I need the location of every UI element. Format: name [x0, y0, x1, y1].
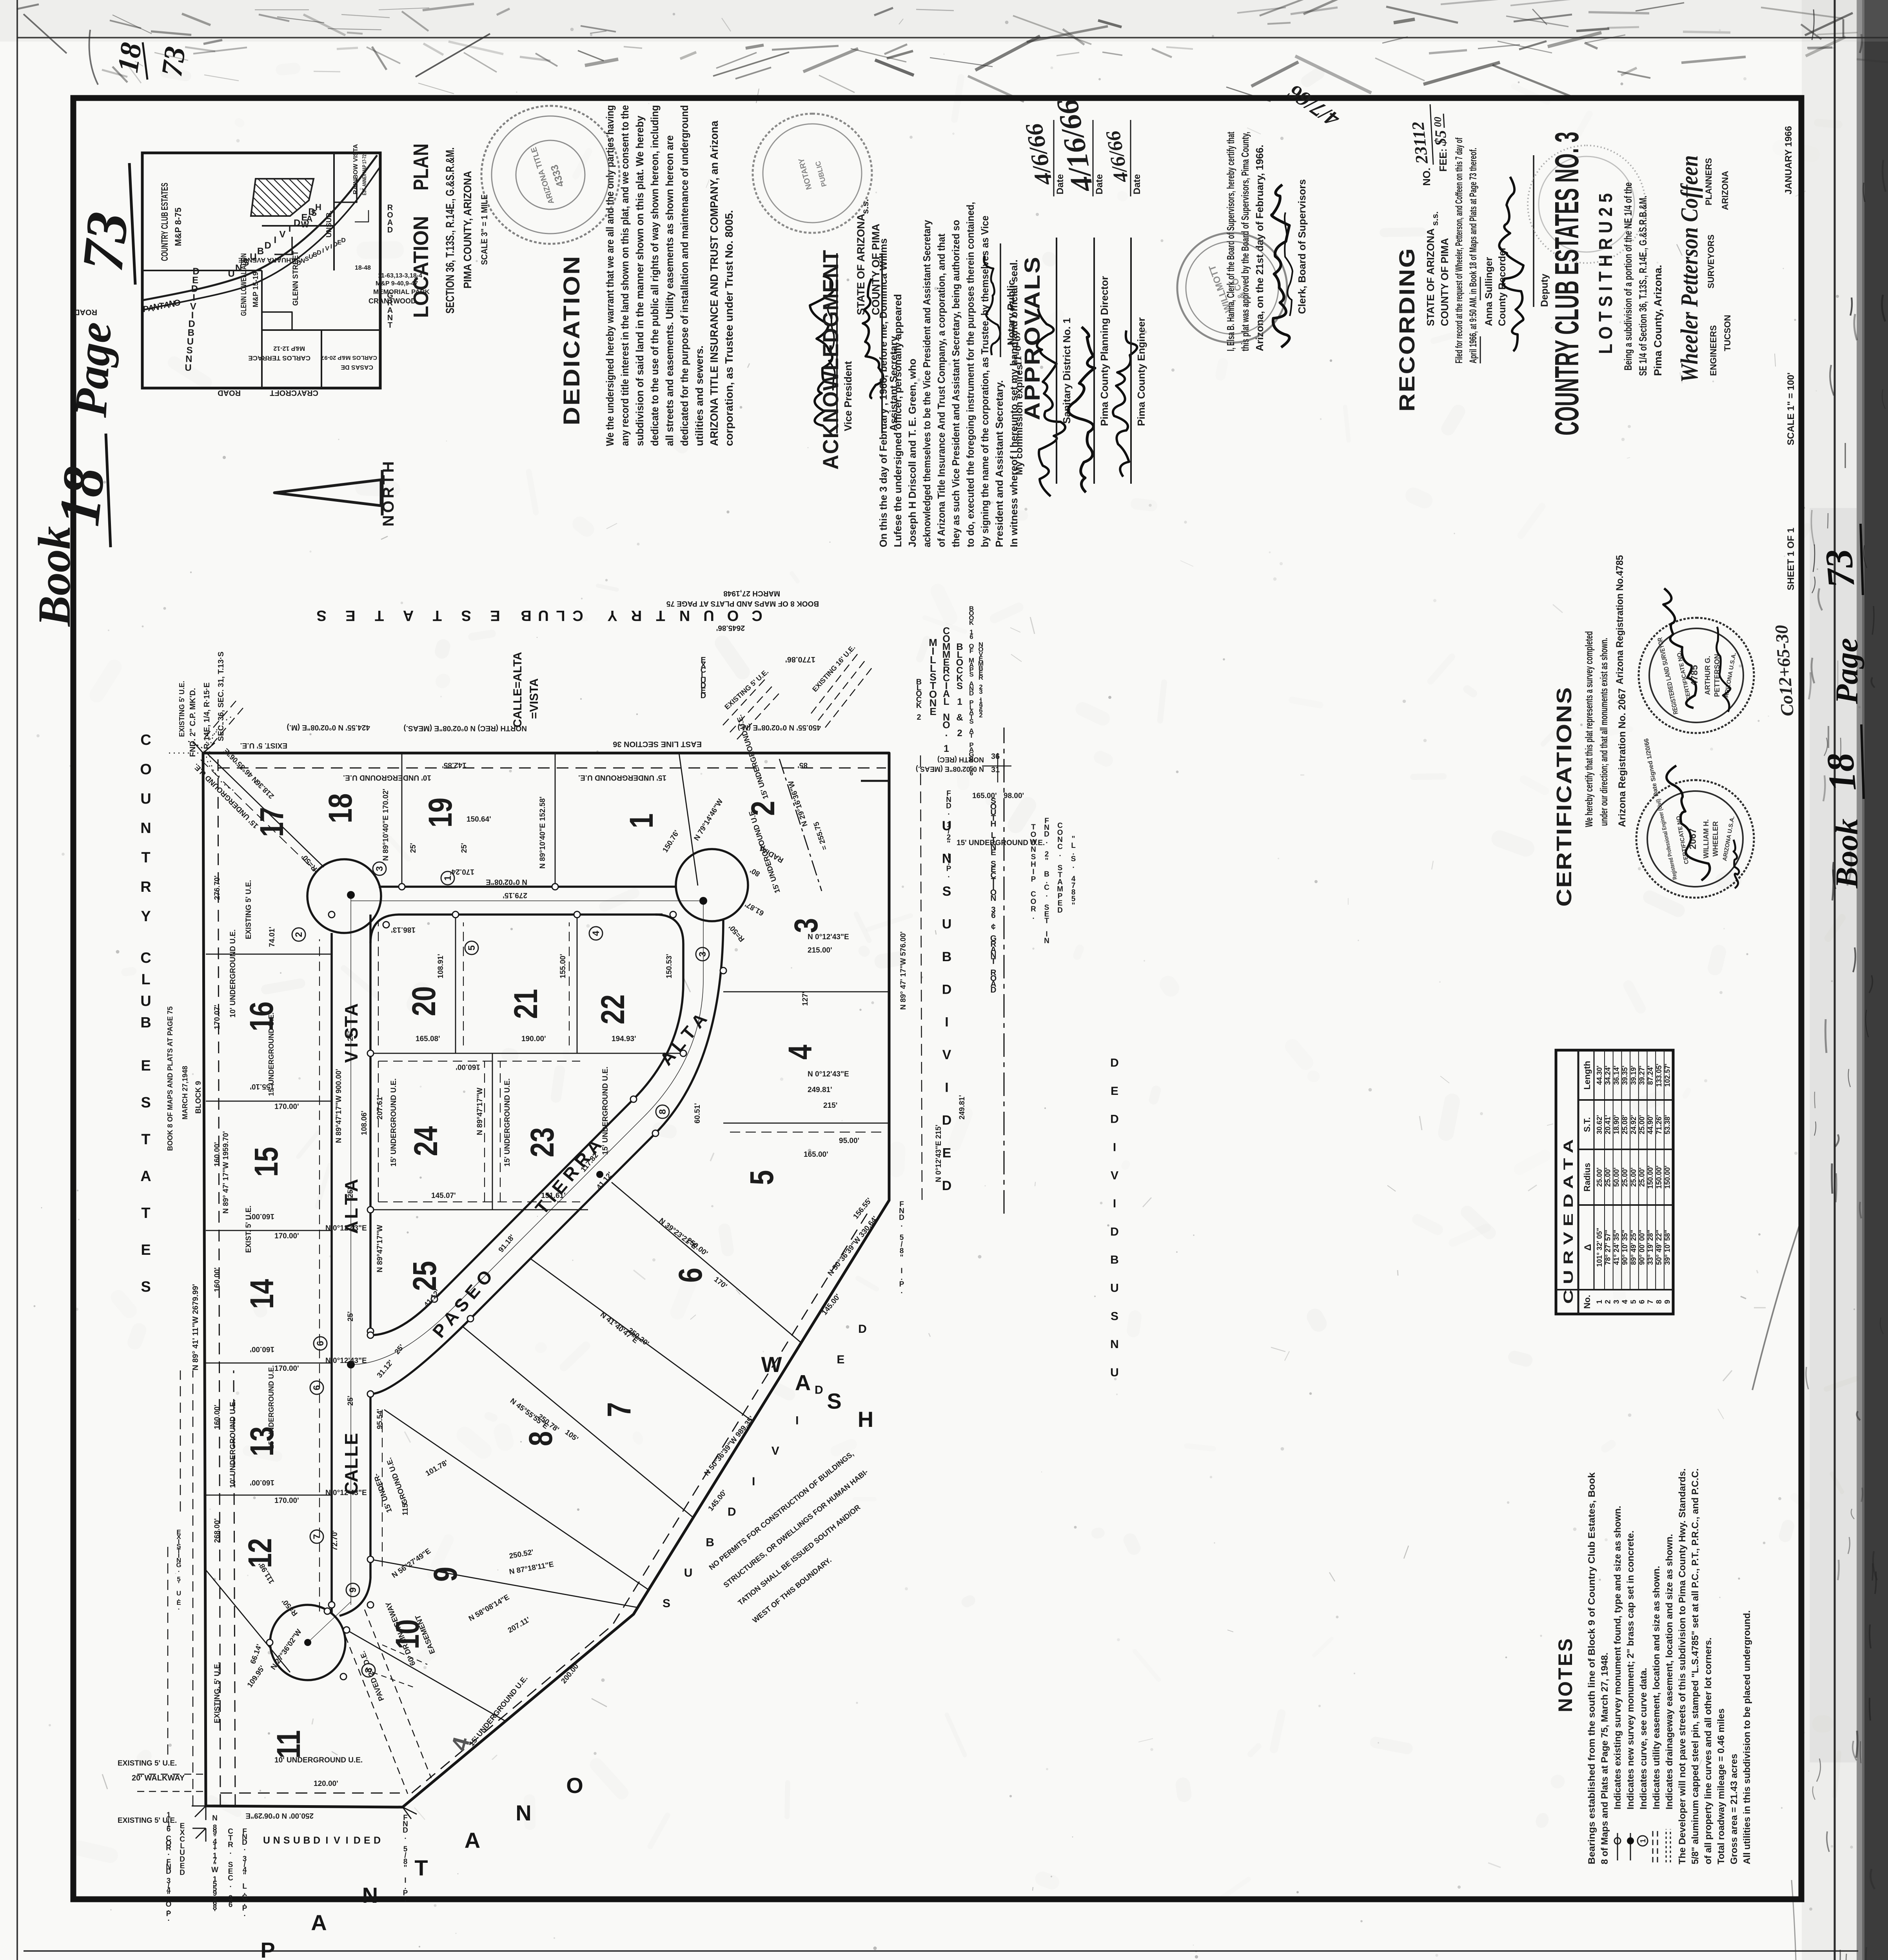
svg-text:ACKNOWLEDGMENT: ACKNOWLEDGMENT — [818, 249, 843, 470]
svg-text:E: E — [837, 1353, 844, 1366]
svg-text:NO.: NO. — [1421, 168, 1432, 186]
svg-text:C: C — [140, 732, 151, 748]
svg-text:Indicates utility easement, lo: Indicates utility easement, location and… — [1651, 1566, 1662, 1809]
svg-text:1: 1 — [1596, 1299, 1604, 1304]
svg-text:ARTHUR G.: ARTHUR G. — [1704, 656, 1712, 695]
svg-text:Indicates drainageway easement: Indicates drainageway easement, location… — [1664, 1534, 1675, 1809]
svg-text:W: W — [761, 1352, 782, 1377]
svg-text:.: . — [229, 1881, 231, 1889]
svg-text:CARLOS TERRACE: CARLOS TERRACE — [248, 354, 310, 362]
svg-text:.: . — [948, 871, 949, 879]
svg-text:R: R — [631, 607, 642, 624]
svg-text:Arizona Registration No.4785: Arizona Registration No.4785 — [1614, 555, 1625, 684]
svg-text:25': 25' — [460, 843, 468, 853]
svg-text:120.00': 120.00' — [314, 1780, 338, 1788]
svg-text:SE 1/4 of Section 36, T.13S.,: SE 1/4 of Section 36, T.13S., R.14E., G.… — [1637, 196, 1649, 376]
svg-text:C: C — [572, 607, 583, 624]
svg-text:C: C — [140, 950, 151, 966]
svg-text:WHEELER: WHEELER — [1712, 821, 1719, 857]
svg-text:17: 17 — [254, 807, 290, 837]
svg-text:O: O — [727, 607, 739, 624]
svg-text:15' UNDERGROUND U.E.: 15' UNDERGROUND U.E. — [957, 839, 1045, 847]
svg-text:39.27': 39.27' — [1638, 1065, 1646, 1085]
svg-text:T: T — [969, 732, 974, 739]
svg-text:39.19': 39.19' — [1630, 1065, 1637, 1085]
svg-text:C U R V E D A T A: C U R V E D A T A — [1561, 1139, 1576, 1304]
svg-text:9: 9 — [1664, 1300, 1672, 1304]
svg-text:155.00': 155.00' — [559, 954, 567, 978]
svg-text:D: D — [701, 691, 706, 700]
svg-text:U: U — [703, 607, 714, 624]
svg-text:A: A — [465, 1828, 480, 1853]
svg-text:No.: No. — [1582, 1295, 1592, 1308]
svg-text:WILLIAM H.: WILLIAM H. — [1702, 819, 1710, 858]
svg-text:24.92': 24.92' — [1630, 1115, 1637, 1134]
svg-text:Book: Book — [29, 526, 80, 627]
svg-text:.: . — [167, 1849, 169, 1857]
svg-text:": " — [900, 1254, 903, 1262]
svg-text:V: V — [772, 1445, 779, 1457]
svg-text:N: N — [273, 1835, 280, 1846]
svg-text:N 89° 47' 17"W 1959.70': N 89° 47' 17"W 1959.70' — [222, 1131, 230, 1214]
svg-text:25': 25' — [347, 1188, 355, 1198]
svg-text:U: U — [684, 1566, 693, 1579]
svg-text:A: A — [341, 1003, 361, 1016]
svg-text:': ' — [178, 1580, 180, 1588]
svg-text:N 89°47'17"W: N 89°47'17"W — [476, 1087, 484, 1135]
svg-text:31: 31 — [991, 766, 1000, 774]
svg-text:V: V — [341, 1051, 361, 1063]
svg-text:25.00': 25.00' — [1630, 1167, 1637, 1187]
svg-text:2: 2 — [1604, 1300, 1612, 1304]
svg-text:11: 11 — [270, 1730, 307, 1759]
svg-text:N: N — [679, 607, 690, 624]
svg-text:N 0°12'43"E: N 0°12'43"E — [808, 1070, 849, 1078]
svg-text:194.93': 194.93' — [612, 1035, 636, 1043]
svg-text:N 89°47'17"W: N 89°47'17"W — [376, 1225, 384, 1272]
svg-text:71.26': 71.26' — [1655, 1115, 1663, 1134]
svg-text:74.01': 74.01' — [268, 927, 276, 947]
svg-text:EXIST. 5' U.E.: EXIST. 5' U.E. — [245, 1205, 253, 1253]
svg-text:150.53': 150.53' — [665, 954, 674, 978]
svg-text:D: D — [1110, 1225, 1119, 1238]
svg-text:2: 2 — [979, 711, 982, 719]
svg-text:.: . — [1046, 890, 1047, 898]
svg-text:9: 9 — [427, 1567, 464, 1582]
svg-text:STATE OF ARIZONA: STATE OF ARIZONA — [1425, 228, 1436, 326]
svg-text:215.00': 215.00' — [808, 946, 832, 955]
svg-text:160.00': 160.00' — [250, 1478, 274, 1486]
svg-text:P: P — [1031, 875, 1036, 884]
svg-text:NORTH: NORTH — [380, 459, 397, 526]
svg-text:.: . — [178, 1604, 180, 1611]
svg-text:S: S — [969, 671, 973, 678]
svg-text:19: 19 — [422, 798, 459, 828]
svg-text:N 0°02'08"E: N 0°02'08"E — [486, 878, 527, 886]
svg-text:to do, executed the foregoing: to do, executed the foregoing instrument… — [964, 202, 976, 547]
svg-text:L: L — [341, 1446, 361, 1457]
svg-text:170.24': 170.24' — [450, 867, 474, 876]
svg-text:4: 4 — [1621, 1299, 1629, 1304]
svg-text:T: T — [341, 1016, 361, 1027]
svg-text:U: U — [140, 791, 151, 807]
svg-text:N 89°10'40"E 152.58': N 89°10'40"E 152.58' — [539, 797, 547, 869]
svg-text:E: E — [991, 848, 996, 857]
svg-text:NORTH (REC): NORTH (REC) — [937, 756, 984, 764]
svg-text:LOCATION: LOCATION — [409, 216, 433, 318]
svg-text:N 0°12'43"E: N 0°12'43"E — [325, 1224, 367, 1232]
svg-text:Pima County Planning Director: Pima County Planning Director — [1098, 276, 1110, 426]
svg-text:V: V — [279, 229, 285, 240]
svg-text:89° 49' 25": 89° 49' 25" — [1630, 1230, 1637, 1265]
svg-text:170.07': 170.07' — [213, 1005, 221, 1029]
svg-text:2: 2 — [917, 713, 921, 722]
svg-text:2645.86': 2645.86' — [716, 624, 745, 632]
svg-text:D: D — [192, 266, 199, 277]
svg-text:160.00': 160.00' — [456, 1063, 480, 1071]
svg-text:25.08': 25.08' — [1621, 1115, 1629, 1134]
svg-text:D: D — [374, 1835, 381, 1846]
svg-text:73: 73 — [70, 209, 141, 274]
svg-text:N: N — [140, 820, 151, 837]
svg-text:10' UNDERGROUND U.E.: 10' UNDERGROUND U.E. — [229, 929, 237, 1018]
svg-text:73: 73 — [155, 44, 192, 78]
svg-text:SAHUARA AVENUE: SAHUARA AVENUE — [238, 256, 300, 264]
svg-text:160.00': 160.00' — [213, 1405, 221, 1429]
svg-text:Length: Length — [1582, 1061, 1592, 1089]
svg-text:EAST LINE SECTION 36: EAST LINE SECTION 36 — [613, 740, 702, 748]
svg-text:13: 13 — [244, 1426, 281, 1457]
svg-text:N 89° 41' 11"W 2679.99': N 89° 41' 11"W 2679.99' — [191, 1284, 200, 1370]
svg-text:15' UNDERGROUND U.E.: 15' UNDERGROUND U.E. — [503, 1078, 512, 1167]
svg-text:16: 16 — [243, 1002, 280, 1032]
svg-text:8: 8 — [1655, 1300, 1663, 1304]
svg-text:S: S — [942, 884, 951, 899]
svg-text:D: D — [858, 1323, 867, 1336]
svg-text:6: 6 — [672, 1268, 709, 1283]
svg-text:90° 10' 35": 90° 10' 35" — [1621, 1230, 1629, 1265]
svg-text:On this the 3 day of February: On this the 3 day of February , 1966, be… — [877, 238, 889, 547]
svg-text:25.00': 25.00' — [1638, 1115, 1646, 1134]
svg-text:": " — [403, 1864, 407, 1872]
svg-text:utilities and sewers.: utilities and sewers. — [693, 345, 705, 446]
svg-text:Gross area = 21.43 acres: Gross area = 21.43 acres — [1729, 1754, 1739, 1864]
svg-text:Y: Y — [607, 607, 617, 624]
svg-text:85': 85' — [797, 761, 808, 769]
svg-text:D: D — [180, 1869, 185, 1877]
svg-text:C: C — [752, 607, 762, 624]
svg-text:by signing the name of the cor: by signing the name of the corporation, … — [979, 216, 991, 547]
svg-text:36: 36 — [991, 752, 1000, 761]
svg-text:S: S — [1111, 1310, 1118, 1323]
svg-text:UNSUB.: UNSUB. — [325, 211, 333, 238]
svg-text:N: N — [212, 1814, 218, 1822]
svg-text:87.24': 87.24' — [1647, 1065, 1654, 1085]
svg-text:53.38': 53.38' — [1664, 1115, 1672, 1134]
svg-text:24: 24 — [408, 1126, 445, 1156]
svg-text:I: I — [1032, 868, 1034, 876]
svg-text:N: N — [1044, 937, 1049, 945]
svg-text:50.00': 50.00' — [1612, 1167, 1620, 1187]
svg-text:K: K — [916, 701, 922, 710]
svg-text:B: B — [521, 607, 531, 624]
svg-text:78° 27' 57": 78° 27' 57" — [1604, 1230, 1612, 1265]
svg-text:A: A — [795, 1370, 811, 1395]
svg-text:U: U — [942, 916, 952, 931]
svg-text:25': 25' — [347, 1311, 355, 1321]
svg-text:142.85': 142.85' — [442, 761, 467, 769]
svg-text:150.00': 150.00' — [1664, 1165, 1672, 1189]
svg-text:25.00': 25.00' — [1621, 1167, 1629, 1187]
svg-text:8: 8 — [657, 1109, 668, 1114]
svg-text:D: D — [1057, 906, 1063, 915]
svg-text:160.00': 160.00' — [213, 1142, 221, 1167]
svg-text:L: L — [943, 696, 949, 707]
svg-text:25.00': 25.00' — [1604, 1167, 1612, 1187]
svg-text:Wheeler Petterson Coffeen: Wheeler Petterson Coffeen — [1676, 155, 1703, 383]
svg-text:A: A — [140, 1168, 151, 1185]
svg-text:207.61': 207.61' — [376, 1095, 384, 1120]
svg-text:3: 3 — [1612, 1300, 1621, 1304]
svg-text:T: T — [414, 1855, 428, 1880]
svg-text:I: I — [795, 1414, 799, 1427]
svg-text:SURVEYORS: SURVEYORS — [1706, 234, 1716, 289]
svg-text:U: U — [538, 607, 548, 624]
svg-text:E: E — [141, 1058, 151, 1074]
svg-text:21: 21 — [508, 989, 545, 1019]
svg-text:S: S — [957, 681, 963, 691]
svg-text:N 0°12'43"E: N 0°12'43"E — [808, 933, 849, 941]
svg-text:39.35': 39.35' — [1621, 1065, 1629, 1085]
svg-text:36.14': 36.14' — [1612, 1065, 1620, 1085]
svg-text:95.00': 95.00' — [839, 1137, 859, 1145]
svg-text:Joseph H Driscoll and T. E: Joseph H Driscoll and T. E. Green, who — [906, 359, 918, 547]
svg-text:L O T S I T H R U 2 5: L O T S I T H R U 2 5 — [1596, 193, 1616, 354]
svg-text:any record title interest in t: any record title interest in the land sh… — [619, 105, 631, 446]
svg-text:Lufese the undersigned offic: Lufese the undersigned officer, personal… — [892, 294, 904, 547]
svg-text:90° 00' 00": 90° 00' 00" — [1638, 1230, 1646, 1265]
svg-text:20' WALKWAY: 20' WALKWAY — [132, 1774, 185, 1782]
svg-text:T: T — [388, 321, 392, 330]
svg-text:E: E — [364, 1835, 370, 1846]
svg-text:165.00': 165.00' — [804, 1151, 828, 1159]
svg-text:CRAYCROFT: CRAYCROFT — [270, 388, 318, 397]
svg-text:this plat was approved by the: this plat was approved by the Board of S… — [1239, 132, 1251, 351]
svg-text:NOTES: NOTES — [1554, 1637, 1576, 1712]
svg-text:D: D — [166, 1867, 171, 1876]
svg-text:s.s.: s.s. — [860, 199, 870, 214]
svg-text:D: D — [265, 240, 271, 251]
svg-text:Δ: Δ — [1583, 1244, 1593, 1250]
svg-text:N: N — [942, 851, 952, 866]
svg-text:S: S — [283, 1835, 290, 1846]
svg-text:44.30': 44.30' — [1596, 1065, 1603, 1085]
svg-text:M&P 15-19: M&P 15-19 — [252, 272, 260, 307]
svg-text:Indicates existing survey monu: Indicates existing survey monument found… — [1612, 1506, 1623, 1809]
svg-text:41° 24' 35": 41° 24' 35" — [1612, 1230, 1620, 1265]
svg-text:Date: Date — [1132, 174, 1142, 194]
svg-text:": " — [243, 1871, 246, 1880]
svg-text:H: H — [858, 1407, 873, 1432]
svg-text:D: D — [1110, 1113, 1119, 1126]
svg-text:170.00': 170.00' — [274, 1497, 299, 1505]
svg-text:150.64': 150.64' — [467, 815, 491, 824]
svg-text:170.00': 170.00' — [274, 1365, 299, 1373]
svg-text:N 89°10'40"E 170.02': N 89°10'40"E 170.02' — [382, 789, 390, 861]
svg-text:O: O — [566, 1773, 583, 1798]
svg-text:N 0°02'08"E (MEAS.): N 0°02'08"E (MEAS.) — [916, 765, 984, 773]
svg-text:EXISTING. 5' U.E.: EXISTING. 5' U.E. — [213, 1662, 221, 1723]
svg-text:6: 6 — [1638, 1300, 1647, 1304]
svg-text:9: 9 — [348, 1587, 358, 1592]
svg-text:6: 6 — [167, 1825, 171, 1833]
svg-text:I: I — [274, 235, 276, 245]
svg-text:276.70': 276.70' — [213, 875, 221, 900]
svg-text:CASAS DE: CASAS DE — [341, 364, 373, 370]
svg-text:D: D — [942, 1113, 952, 1128]
svg-text:B: B — [706, 1536, 714, 1549]
svg-text:subdivision of said land in th: subdivision of said land in the manner s… — [634, 116, 646, 446]
svg-text:O: O — [174, 298, 180, 308]
svg-text:L: L — [141, 971, 150, 988]
svg-text:ENGINEERS: ENGINEERS — [1708, 325, 1718, 376]
svg-text:D: D — [969, 690, 974, 697]
svg-text:E: E — [341, 1433, 361, 1445]
svg-text:98.00': 98.00' — [1004, 792, 1024, 800]
svg-text:Anna Sullinger: Anna Sullinger — [1483, 257, 1494, 326]
svg-text:NORTH (REC) N 0°02'08"E (MEAS.: NORTH (REC) N 0°02'08"E (MEAS.) — [403, 724, 527, 732]
svg-text:Bearings established from the: Bearings established from the south line… — [1587, 1472, 1597, 1864]
svg-text:25: 25 — [407, 1261, 443, 1291]
svg-text:V: V — [942, 1047, 951, 1062]
svg-text:S: S — [1031, 853, 1036, 861]
svg-text:S.T.: S.T. — [1582, 1117, 1592, 1132]
svg-text:170.00': 170.00' — [274, 1103, 299, 1111]
svg-text:249.81': 249.81' — [808, 1086, 832, 1094]
svg-text:SHEET 1 OF 1: SHEET 1 OF 1 — [1786, 528, 1796, 590]
svg-text:I: I — [330, 243, 332, 250]
svg-text:We hereby certify that this pl: We hereby certify that this plat represe… — [1583, 631, 1595, 827]
svg-text:K: K — [969, 619, 974, 626]
svg-text:Pima County Engineer: Pima County Engineer — [1135, 318, 1147, 426]
svg-text:D: D — [815, 1384, 823, 1397]
svg-text:H: H — [990, 819, 996, 828]
svg-text:S: S — [969, 718, 973, 725]
svg-text:B: B — [303, 1835, 310, 1846]
svg-text:160.00': 160.00' — [213, 1267, 221, 1292]
svg-text:165.00': 165.00' — [972, 792, 997, 800]
svg-text:160.00': 160.00' — [250, 1345, 274, 1353]
svg-text:18.90': 18.90' — [1612, 1115, 1620, 1134]
svg-text:I: I — [1113, 1141, 1116, 1154]
svg-text:5: 5 — [467, 945, 477, 950]
svg-text:U: U — [263, 1835, 270, 1846]
svg-text:.: . — [404, 1895, 406, 1904]
svg-text:Y: Y — [141, 908, 151, 925]
svg-text:I: I — [945, 1080, 948, 1095]
svg-text:Arizona Registration No. 2067: Arizona Registration No. 2067 — [1617, 688, 1628, 827]
svg-text:I: I — [341, 1043, 361, 1048]
svg-text:3: 3 — [374, 866, 385, 871]
svg-text:25': 25' — [347, 1031, 355, 1041]
svg-text:25.00': 25.00' — [1638, 1167, 1646, 1187]
svg-text:under our direction; and that: under our direction; and that all monume… — [1598, 638, 1610, 826]
svg-text:Indicates new survey monument;: Indicates new survey monument; 2" brass … — [1625, 1530, 1636, 1809]
svg-text:1: 1 — [944, 743, 949, 754]
svg-text:N 89° 47' 17"W 576.00': N 89° 47' 17"W 576.00' — [899, 931, 908, 1010]
svg-text:15' UNDERGROUND U.E.: 15' UNDERGROUND U.E. — [601, 1067, 610, 1155]
svg-text:C: C — [1031, 890, 1036, 898]
svg-text:L: L — [341, 1208, 361, 1219]
svg-text:186.13': 186.13' — [391, 926, 416, 934]
svg-text:23: 23 — [524, 1127, 561, 1158]
svg-text:E: E — [345, 607, 355, 624]
svg-text:44.90': 44.90' — [1647, 1115, 1654, 1134]
svg-text:25.00': 25.00' — [1596, 1167, 1603, 1187]
svg-text:3: 3 — [697, 951, 708, 956]
svg-text:108.91': 108.91' — [437, 954, 445, 978]
svg-text:127': 127' — [801, 992, 810, 1006]
svg-text:6: 6 — [991, 911, 996, 920]
svg-text:I: I — [322, 247, 324, 254]
svg-text:7: 7 — [1647, 1300, 1655, 1304]
svg-text:F: F — [969, 647, 973, 655]
svg-text:10' UNDERGROUND U.E.: 10' UNDERGROUND U.E. — [343, 773, 431, 782]
svg-text:4: 4 — [591, 931, 601, 936]
svg-text:MARCH 27,1948: MARCH 27,1948 — [723, 589, 780, 597]
svg-text:EXIST. 5' U.E.: EXIST. 5' U.E. — [240, 741, 287, 750]
svg-text:190.00': 190.00' — [521, 1035, 546, 1043]
svg-text:I: I — [289, 223, 291, 234]
svg-text:U: U — [293, 1835, 300, 1846]
svg-text:ARIZONA TITLE INSURANCE AND TR: ARIZONA TITLE INSURANCE AND TRUST COMPAN… — [708, 121, 720, 446]
svg-text:10' UNDERGROUND U.E.: 10' UNDERGROUND U.E. — [229, 1400, 237, 1488]
svg-text:COUNTY OF PIMA: COUNTY OF PIMA — [1439, 238, 1450, 326]
svg-text:Radius: Radius — [1582, 1163, 1592, 1191]
svg-text:165.08': 165.08' — [416, 1035, 440, 1043]
svg-text:dedicate to the use of the pub: dedicate to the use of the public all ri… — [649, 105, 661, 446]
svg-text:1: 1 — [623, 813, 660, 828]
svg-text:=VISTA: =VISTA — [528, 678, 541, 719]
svg-text:DEDICATION: DEDICATION — [559, 255, 585, 425]
svg-text:.: . — [178, 1566, 180, 1573]
svg-text:TUCSON: TUCSON — [1723, 315, 1732, 351]
svg-text:L: L — [556, 607, 565, 624]
svg-text:60.51': 60.51' — [693, 1103, 702, 1123]
svg-text:T: T — [141, 1205, 150, 1221]
svg-text:.: . — [945, 728, 948, 739]
svg-text:Page: Page — [1829, 638, 1864, 704]
svg-text:BOOK 8 OF MAPS AND PLATS AT PA: BOOK 8 OF MAPS AND PLATS AT PAGE 75 — [166, 1006, 174, 1151]
svg-text:of Arizona Title Insurance And: of Arizona Title Insurance And Trust Com… — [935, 234, 947, 547]
svg-text:E: E — [942, 1146, 951, 1161]
svg-text:EXISTING 5' U.E.: EXISTING 5' U.E. — [178, 681, 186, 737]
svg-text:33° 19' 28": 33° 19' 28" — [1647, 1230, 1654, 1265]
svg-text:7: 7 — [312, 1534, 322, 1539]
svg-text:8: 8 — [523, 1431, 559, 1446]
svg-text:PLANNERS: PLANNERS — [1704, 158, 1714, 205]
svg-text:N: N — [516, 1800, 531, 1825]
svg-text:145.07': 145.07' — [431, 1192, 456, 1200]
svg-text:PLAN: PLAN — [409, 143, 433, 191]
svg-text:V: V — [334, 1835, 340, 1846]
svg-text:PIMA COUNTY, ARIZONA: PIMA COUNTY, ARIZONA — [461, 171, 474, 289]
svg-text:6: 6 — [969, 769, 973, 777]
svg-text:D: D — [942, 982, 952, 997]
svg-text:Vice President: Vice President — [842, 361, 854, 431]
svg-text:D: D — [990, 985, 996, 995]
svg-text:I: I — [325, 1835, 328, 1846]
